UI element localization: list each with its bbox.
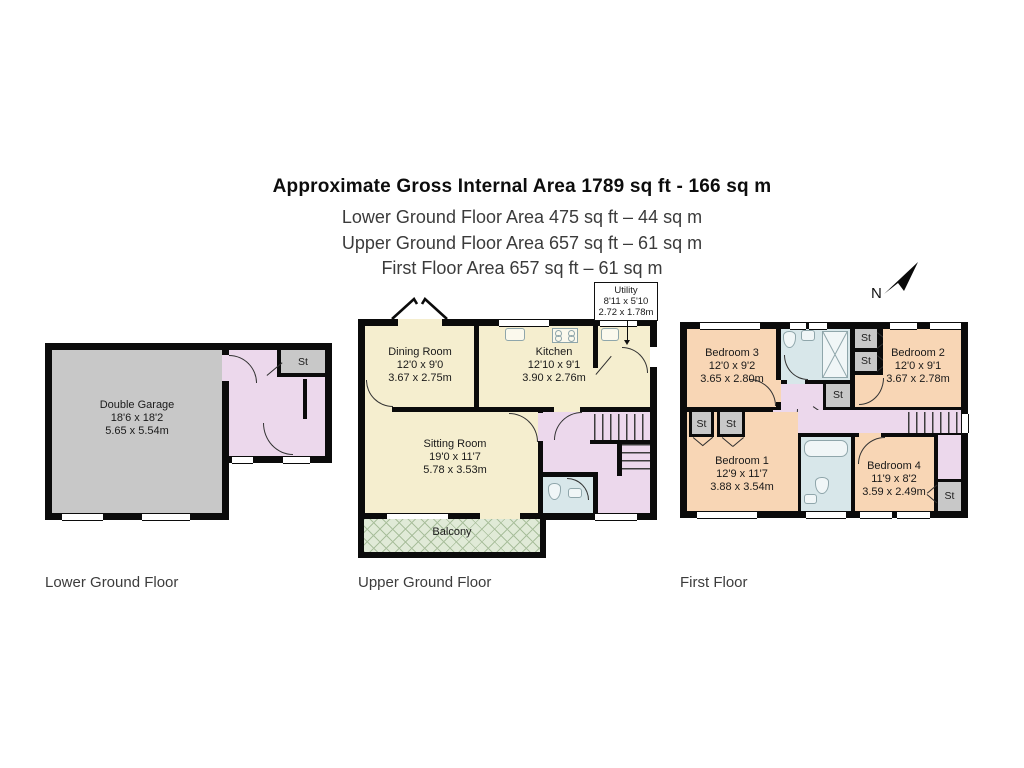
caption-first-floor: First Floor	[680, 574, 748, 591]
sink-icon	[601, 328, 619, 341]
north-arrow-icon	[881, 261, 921, 299]
room-dims-metric: 3.59 x 2.49m	[850, 486, 938, 499]
door-opening	[538, 413, 543, 441]
room-dims-metric: 3.67 x 2.75m	[364, 372, 476, 385]
stairs-icon	[908, 412, 961, 433]
sink-icon	[505, 328, 525, 341]
callout-arrow-icon	[624, 340, 630, 345]
door-opening	[650, 347, 657, 367]
caption-lower-ground: Lower Ground Floor	[45, 574, 178, 591]
room-dims-imperial: 12'0 x 9'2	[685, 360, 779, 373]
window	[930, 322, 961, 330]
room-dims-imperial: 12'10 x 9'1	[496, 359, 612, 372]
basin-icon	[568, 488, 582, 498]
door-opening	[222, 355, 229, 381]
window	[897, 511, 930, 519]
room-label-bedroom-4: Bedroom 4 11'9 x 8'2 3.59 x 2.49m	[850, 460, 938, 499]
room-dims-metric: 3.90 x 2.76m	[496, 372, 612, 385]
window	[700, 322, 760, 330]
first-floor-plan: St St St St St St	[680, 322, 968, 518]
callout-leader-line	[627, 320, 628, 340]
door-opening	[787, 380, 805, 384]
stairs-icon	[303, 379, 325, 419]
room-dims-imperial: 8'11 x 5'10	[596, 296, 656, 307]
stairs-icon	[938, 435, 961, 479]
stove-icon	[552, 328, 578, 343]
lower-ground-area-line: Lower Ground Floor Area 475 sq ft – 44 s…	[162, 205, 882, 231]
basin-icon	[801, 330, 815, 341]
room-name: Double Garage	[72, 399, 202, 412]
storage-label: St	[826, 389, 850, 401]
bay-window-opening	[398, 319, 442, 327]
room-label-balcony: Balcony	[364, 526, 540, 539]
window	[595, 513, 637, 521]
room-name: Sitting Room	[380, 438, 530, 451]
room-label-kitchen: Kitchen 12'10 x 9'1 3.90 x 2.76m	[496, 346, 612, 385]
room-dims-imperial: 11'9 x 8'2	[850, 473, 938, 486]
room-dims-metric: 2.72 x 1.78m	[596, 307, 656, 318]
door-opening	[365, 407, 392, 412]
window	[890, 322, 917, 330]
basin-icon	[804, 494, 817, 504]
window	[232, 456, 253, 464]
storage-label: St	[281, 356, 325, 368]
bath-icon	[804, 440, 848, 457]
window	[961, 414, 969, 433]
wall	[617, 444, 622, 476]
room-dims-metric: 3.88 x 3.54m	[688, 481, 796, 494]
room-label-bedroom-3: Bedroom 3 12'0 x 9'2 3.65 x 2.80m	[685, 347, 779, 386]
bay-window-icon	[389, 294, 449, 320]
room-label-garage: Double Garage 18'6 x 18'2 5.65 x 5.54m	[72, 399, 202, 438]
caption-upper-ground: Upper Ground Floor	[358, 574, 491, 591]
utility-callout: Utility 8'11 x 5'10 2.72 x 1.78m	[594, 282, 658, 321]
first-floor-area-line: First Floor Area 657 sq ft – 61 sq m	[162, 256, 882, 282]
room-name: Bedroom 3	[685, 347, 779, 360]
window	[62, 513, 103, 521]
wall	[543, 472, 598, 477]
upper-ground-area-line: Upper Ground Floor Area 657 sq ft – 61 s…	[162, 231, 882, 257]
window	[806, 511, 846, 519]
room-label-bedroom-2: Bedroom 2 12'0 x 9'1 3.67 x 2.78m	[874, 347, 962, 386]
room-label-sitting: Sitting Room 19'0 x 11'7 5.78 x 3.53m	[380, 438, 530, 477]
room-name: Bedroom 1	[688, 455, 796, 468]
storage-label: St	[855, 332, 877, 344]
room-name: Utility	[596, 285, 656, 296]
storage-label: St	[717, 418, 745, 430]
room-name: Kitchen	[496, 346, 612, 359]
upper-ground-floor-plan: Balcony Utility 8'11 x 5'10 2.72 x 1.78m…	[358, 280, 660, 560]
room-dims-imperial: 18'6 x 18'2	[72, 412, 202, 425]
gross-internal-area-title: Approximate Gross Internal Area 1789 sq …	[162, 176, 882, 198]
storage-label: St	[938, 490, 961, 502]
room-label-bedroom-1: Bedroom 1 12'9 x 11'7 3.88 x 3.54m	[688, 455, 796, 494]
room-name: Dining Room	[364, 346, 476, 359]
room-dims-imperial: 12'0 x 9'1	[874, 360, 962, 373]
room-name: Bedroom 2	[874, 347, 962, 360]
window	[283, 456, 310, 464]
area-summary: Approximate Gross Internal Area 1789 sq …	[162, 176, 882, 282]
room-name: Balcony	[364, 526, 540, 539]
window	[142, 513, 190, 521]
window	[860, 511, 892, 519]
window	[809, 322, 827, 330]
stairs-icon	[594, 414, 650, 440]
room-dims-imperial: 12'0 x 9'0	[364, 359, 476, 372]
room-dims-metric: 3.67 x 2.78m	[874, 373, 962, 386]
door-opening	[859, 433, 881, 437]
wall	[593, 472, 598, 513]
door-opening	[554, 407, 580, 412]
room-dims-metric: 3.65 x 2.80m	[685, 373, 779, 386]
room-label-dining: Dining Room 12'0 x 9'0 3.67 x 2.75m	[364, 346, 476, 385]
lower-ground-floor-plan: St Double Garage 18'6 x 18'2 5.65 x 5.54…	[45, 343, 332, 520]
room-dims-imperial: 19'0 x 11'7	[380, 451, 530, 464]
room-name: Bedroom 4	[850, 460, 938, 473]
room-dims-imperial: 12'9 x 11'7	[688, 468, 796, 481]
room-dims-metric: 5.65 x 5.54m	[72, 425, 202, 438]
window	[499, 319, 549, 327]
stairs-icon	[622, 444, 650, 476]
storage-label: St	[689, 418, 714, 430]
room-dims-metric: 5.78 x 3.53m	[380, 464, 530, 477]
shower-icon	[822, 331, 848, 378]
window	[697, 511, 757, 519]
window	[790, 322, 806, 330]
